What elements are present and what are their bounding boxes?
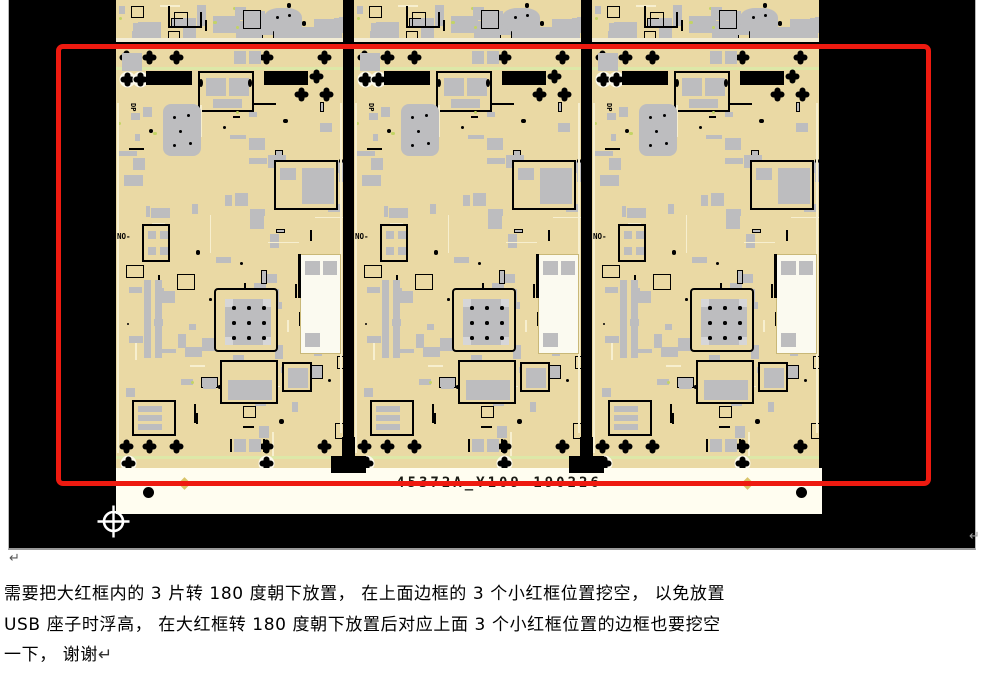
instruction-line-3-text: 一下， 谢谢: [4, 645, 98, 665]
pcb-component: [790, 19, 818, 39]
via-hole: [526, 14, 529, 17]
instruction-line-3: 一下， 谢谢↵: [4, 640, 982, 671]
image-trailing-return-mark: ↵: [969, 529, 980, 544]
pcb-component: [552, 19, 580, 39]
paragraph-mark-inline: ↵: [98, 645, 113, 665]
crosshair-fiducial-icon: [95, 503, 132, 540]
test-point: [236, 26, 239, 29]
test-point: [451, 21, 454, 24]
via-hole: [778, 21, 782, 25]
rail-dot: [796, 487, 807, 498]
pcb-outline-part: [607, 6, 620, 17]
pcb-component: [595, 6, 602, 14]
via-hole: [276, 16, 279, 19]
test-point: [474, 26, 477, 29]
instruction-line-2: USB 座子时浮高， 在大红框转 180 度朝下放置后对应上面 3 个小红框位置…: [4, 610, 982, 641]
pcb-component: [502, 8, 540, 32]
pcb-component: [740, 8, 778, 32]
pcb-component: [314, 19, 342, 39]
red-frame-annotation: [56, 44, 931, 486]
pcb-component: [264, 8, 302, 32]
rail-dot: [143, 487, 154, 498]
via-hole: [540, 21, 544, 25]
via-hole: [514, 16, 517, 19]
board-edge-line: [592, 38, 819, 42]
board-edge-line: [354, 38, 581, 42]
instruction-line-1: 需要把大红框内的 3 片转 180 度朝下放置， 在上面边框的 3 个小红框位置…: [4, 579, 982, 610]
pcb-angle-trace: [644, 6, 678, 28]
pcb-component: [719, 10, 737, 29]
pcb-angle-trace: [406, 6, 440, 28]
pcb-outline-part: [131, 6, 144, 17]
pcb-trace-dark: [443, 20, 445, 31]
test-point: [213, 21, 216, 24]
via-hole: [288, 14, 291, 17]
document-page: 45372A_Y109-190226 DPNO-DPNO-DPNO- ↵ ↵ 需…: [0, 0, 983, 695]
pcb-component: [481, 10, 499, 29]
test-point: [357, 17, 360, 20]
test-point: [689, 21, 692, 24]
test-point: [119, 17, 122, 20]
via-hole: [287, 3, 291, 7]
pcb-outline-part: [369, 6, 382, 17]
board-top-strip-1: [116, 0, 343, 42]
instruction-text: 需要把大红框内的 3 片转 180 度朝下放置， 在上面边框的 3 个小红框位置…: [4, 579, 982, 671]
board-edge-line: [116, 38, 343, 42]
test-point: [712, 26, 715, 29]
board-top-strip-2: [354, 0, 581, 42]
test-point: [595, 17, 598, 20]
pcb-trace-dark: [681, 20, 683, 31]
pcb-component: [119, 6, 126, 14]
board-top-strip-3: [592, 0, 819, 42]
pcb-panel-image: 45372A_Y109-190226 DPNO-DPNO-DPNO-: [8, 0, 976, 550]
via-hole: [764, 14, 767, 17]
via-hole: [763, 3, 767, 7]
via-hole: [752, 16, 755, 19]
via-hole: [525, 3, 529, 7]
paragraph-mark: ↵: [9, 551, 20, 566]
via-hole: [302, 21, 306, 25]
pcb-angle-trace: [168, 6, 202, 28]
pcb-trace-dark: [205, 20, 207, 31]
pcb-component: [357, 6, 364, 14]
pcb-component: [243, 10, 261, 29]
